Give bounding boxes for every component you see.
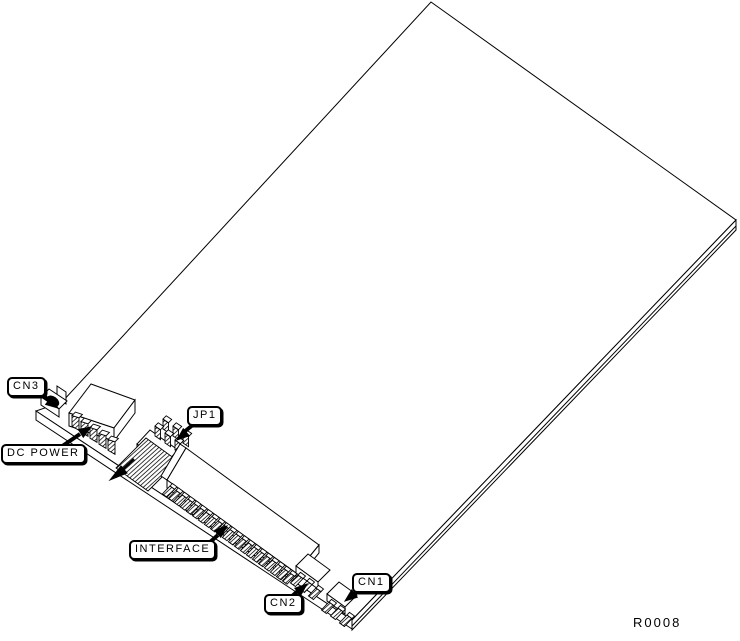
board-top-face xyxy=(36,2,736,620)
callout-cn2: CN2 xyxy=(264,594,303,614)
callout-jp1: JP1 xyxy=(187,406,222,426)
diagram-canvas: CN3 DC POWER JP1 INTERFACE CN2 CN1 R0008 xyxy=(0,0,740,641)
figure-reference: R0008 xyxy=(633,615,681,630)
board-diagram xyxy=(0,0,740,641)
callout-cn3: CN3 xyxy=(7,377,46,397)
callout-dc-power: DC POWER xyxy=(1,444,86,464)
callout-cn1: CN1 xyxy=(352,573,391,593)
callout-interface: INTERFACE xyxy=(129,540,216,560)
